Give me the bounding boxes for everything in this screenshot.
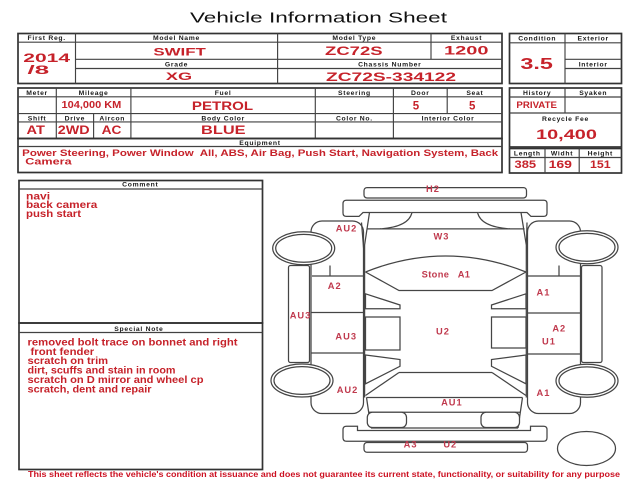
svg-text:First Reg.: First Reg. (28, 35, 66, 42)
svg-text:Stone A1: Stone A1 (422, 270, 471, 280)
svg-text:ZC72S: ZC72S (325, 44, 383, 58)
svg-text:U2: U2 (436, 326, 450, 336)
svg-text:U2: U2 (443, 440, 457, 450)
svg-text:History: History (523, 90, 551, 97)
svg-text:A1: A1 (537, 288, 551, 298)
svg-text:A2: A2 (552, 323, 566, 333)
svg-text:U1: U1 (542, 337, 556, 347)
svg-text:Length: Length (514, 151, 541, 158)
svg-text:AU2: AU2 (336, 223, 358, 233)
svg-text:W3: W3 (434, 232, 450, 242)
svg-text:Interior: Interior (579, 62, 608, 69)
svg-text:Model Name: Model Name (153, 35, 200, 42)
svg-text:A3: A3 (404, 440, 418, 450)
svg-text:This sheet reflects the vehicl: This sheet reflects the vehicle's condit… (28, 470, 621, 479)
svg-text:ZC72S-334122: ZC72S-334122 (326, 70, 457, 84)
svg-text:151: 151 (590, 159, 611, 171)
svg-text:BLUE: BLUE (201, 123, 246, 137)
svg-text:H2: H2 (426, 184, 440, 194)
svg-text:Meter: Meter (26, 90, 48, 97)
svg-text:3.5: 3.5 (520, 56, 553, 73)
svg-text:AU2: AU2 (337, 385, 359, 395)
svg-text:Comment: Comment (122, 181, 158, 188)
svg-text:Grade: Grade (165, 62, 188, 69)
svg-text:1200: 1200 (444, 44, 489, 58)
svg-text:104,000 KM: 104,000 KM (62, 100, 122, 111)
svg-text:Mileage: Mileage (79, 90, 109, 97)
svg-text:Color No.: Color No. (336, 116, 373, 123)
svg-text:AT: AT (27, 123, 46, 137)
svg-text:5: 5 (413, 100, 420, 112)
svg-text:Interior Color: Interior Color (422, 116, 475, 123)
svg-text:Exterior: Exterior (578, 36, 609, 43)
svg-text:Body Color: Body Color (201, 116, 245, 123)
svg-text:Height: Height (588, 151, 613, 158)
svg-text:Drive: Drive (65, 116, 86, 123)
svg-text:169: 169 (549, 159, 572, 171)
svg-text:Shift: Shift (28, 116, 47, 123)
svg-text:385: 385 (515, 159, 537, 171)
svg-text:AU1: AU1 (441, 398, 463, 408)
svg-text:PETROL: PETROL (192, 101, 253, 113)
svg-text:Syaken: Syaken (579, 90, 607, 97)
svg-text:Chassis Number: Chassis Number (358, 62, 421, 69)
svg-text:10,400: 10,400 (536, 126, 597, 142)
svg-text:AC: AC (102, 123, 122, 137)
svg-text:Widht: Widht (551, 151, 573, 158)
svg-text:2WD: 2WD (58, 123, 90, 137)
svg-text:Condition: Condition (518, 36, 556, 43)
svg-text:SWIFT: SWIFT (153, 47, 205, 59)
svg-text:Camera: Camera (25, 156, 71, 166)
svg-text:Seat: Seat (466, 90, 483, 97)
svg-text:/8: /8 (28, 63, 50, 77)
svg-text:scratch, dent and repair: scratch, dent and repair (28, 383, 152, 395)
svg-text:A1: A1 (537, 388, 551, 398)
svg-text:Steering: Steering (338, 90, 371, 97)
svg-text:Model Type: Model Type (332, 35, 376, 42)
svg-text:Exhaust: Exhaust (451, 35, 482, 42)
svg-text:push start: push start (26, 209, 82, 220)
svg-text:Equipment: Equipment (239, 140, 280, 147)
svg-text:AU3: AU3 (290, 311, 312, 321)
svg-text:A2: A2 (328, 281, 342, 291)
svg-text:Special Note: Special Note (114, 326, 163, 333)
svg-text:Vehicle Information Sheet: Vehicle Information Sheet (190, 10, 447, 26)
svg-text:AU3: AU3 (335, 331, 357, 341)
svg-text:Door: Door (411, 90, 430, 97)
svg-text:Recycle Fee: Recycle Fee (542, 116, 589, 123)
svg-text:PRIVATE: PRIVATE (516, 100, 557, 110)
svg-text:Power Steering, Power Window: Power Steering, Power Window All, ABS, A… (22, 148, 498, 158)
svg-text:5: 5 (469, 100, 476, 112)
svg-text:Aircon: Aircon (99, 116, 125, 123)
svg-text:Fuel: Fuel (215, 90, 232, 97)
svg-text:XG: XG (166, 71, 192, 83)
